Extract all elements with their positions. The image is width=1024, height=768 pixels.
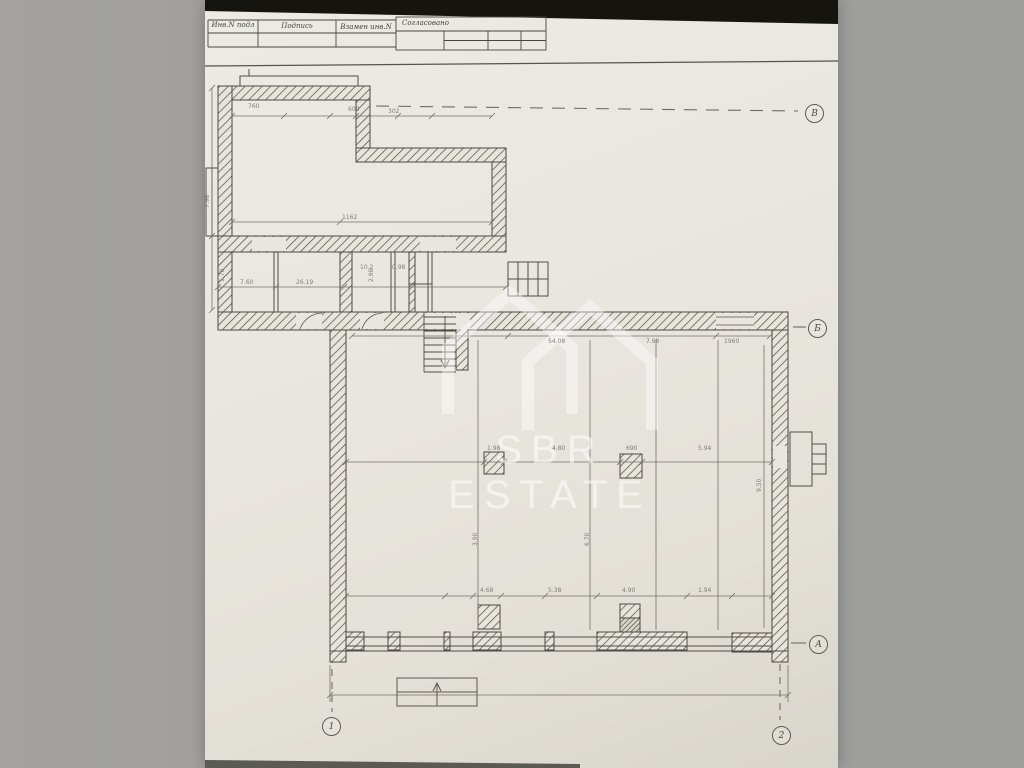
dim-label: 2.98 — [368, 269, 375, 282]
dim-label: 7.98 — [646, 338, 659, 345]
partitions — [206, 69, 826, 651]
dim-label: 5.38 — [548, 587, 561, 594]
axis-marker-1: 1 — [322, 717, 341, 736]
floor-plan-drawing — [0, 0, 1024, 768]
dim-label: 4.68 — [480, 587, 493, 594]
axis-marker-2: 2 — [772, 726, 791, 745]
title-cell-signature-label: Подпись — [272, 22, 322, 30]
axis-marker-b: Б — [808, 319, 827, 338]
axis-marker-a: А — [809, 635, 828, 654]
photo-of-floor-plan: { "title_block": { "cells": [ { "label":… — [0, 0, 1024, 768]
title-cell-inv-label: Инв.N подл — [210, 21, 256, 29]
sheet-frame-line — [205, 61, 838, 66]
dim-label: 26.19 — [296, 279, 313, 286]
column-base-dense-hatch — [620, 618, 640, 632]
dim-label: 9.50 — [756, 479, 763, 492]
axis-marker-v: В — [805, 104, 824, 123]
title-cell-replacement-label: Взамен инв.N — [338, 23, 394, 31]
dim-label: 0.98 — [392, 264, 405, 271]
dim-label: 54.08 — [548, 338, 565, 345]
photo-bottom-shadow — [205, 760, 580, 768]
watermark-text: SBR ESTATE — [392, 428, 708, 518]
dim-label: 1.94 — [698, 587, 711, 594]
walls — [218, 86, 788, 662]
dim-label: 7.60 — [240, 279, 253, 286]
title-approved-label: Согласовано — [402, 19, 492, 27]
dim-label: 1960 — [724, 338, 739, 345]
dim-label: 1162 — [342, 214, 357, 221]
dim-label: 760 — [248, 103, 259, 110]
dim-label: 302 — [388, 108, 399, 115]
dim-label: 600 — [348, 106, 359, 113]
title-block-grid — [208, 17, 546, 50]
dim-label: 6.70 — [584, 533, 591, 546]
section-marker — [397, 678, 477, 706]
dim-label: 4.90 — [622, 587, 635, 594]
dim-label: 3.90 — [472, 533, 479, 546]
dim-label: 7.98 — [204, 195, 211, 208]
dim-label: 1.70 — [219, 269, 226, 282]
